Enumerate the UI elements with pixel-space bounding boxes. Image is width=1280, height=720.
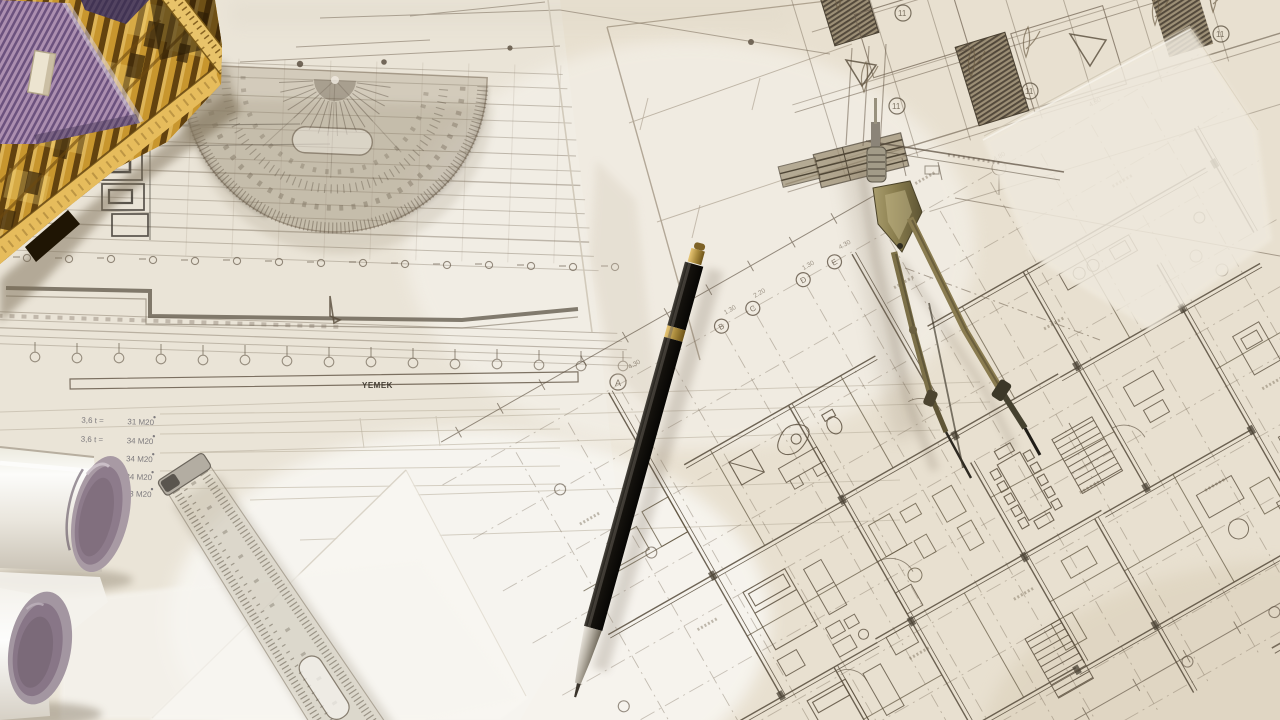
svg-text:11: 11 <box>898 9 907 18</box>
svg-text:YEMEK: YEMEK <box>362 381 393 390</box>
svg-text:3,6 t =: 3,6 t = <box>81 435 104 445</box>
svg-text:34 M20: 34 M20 <box>126 454 154 464</box>
svg-text:34 M20: 34 M20 <box>127 436 155 446</box>
svg-text:3,6 t =: 3,6 t = <box>81 416 104 426</box>
svg-text:11: 11 <box>1216 30 1225 39</box>
svg-text:11: 11 <box>1025 87 1034 96</box>
svg-text:11: 11 <box>892 102 901 111</box>
